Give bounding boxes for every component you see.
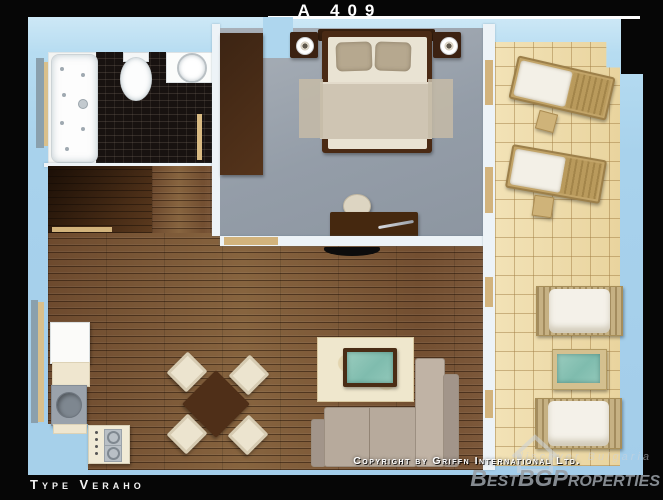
tub-jet xyxy=(60,67,64,71)
lounger-slats xyxy=(565,72,611,116)
tub-jet xyxy=(81,127,85,131)
balcony-side-table xyxy=(532,195,555,219)
stove-burner xyxy=(104,445,122,462)
bedroom-door-threshold xyxy=(224,237,278,245)
stove-knob xyxy=(95,438,98,441)
fridge xyxy=(50,322,90,364)
lounger-slats xyxy=(560,158,602,200)
balcony-table-glass xyxy=(557,354,600,383)
lamp-left xyxy=(296,37,314,55)
stove-knob xyxy=(95,431,98,434)
bathtub xyxy=(51,54,98,163)
entry-hall-floor xyxy=(48,166,152,233)
tub-jet xyxy=(81,73,85,77)
bed-blanket xyxy=(320,82,432,139)
kitchen-counter-end xyxy=(53,424,87,434)
frame-top-right-notch xyxy=(621,0,663,74)
lounger-cushion xyxy=(513,60,573,107)
stove-knob xyxy=(95,445,98,448)
kitchen-sink-unit xyxy=(51,385,87,426)
kitchen-window-sill xyxy=(38,302,44,422)
kitchen-counter xyxy=(52,362,90,387)
coffee-table-glass xyxy=(347,352,393,383)
balcony-door-frame xyxy=(485,167,493,213)
watermark-brand: BestBGProperties xyxy=(448,465,660,492)
toilet xyxy=(120,57,152,101)
stove-burner xyxy=(104,429,122,446)
corridor-floor xyxy=(152,166,212,236)
pillow-right xyxy=(375,41,412,71)
hall-door-threshold xyxy=(52,227,112,232)
bedroom-wall-notch xyxy=(263,17,293,58)
floorplan-image: A 409 xyxy=(0,0,663,500)
stove xyxy=(88,425,130,464)
sofa-chaise xyxy=(415,358,445,467)
tub-jet xyxy=(65,147,69,151)
stove-knob xyxy=(95,452,98,455)
balcony-door-frame xyxy=(485,390,493,418)
kitchen-window xyxy=(31,300,38,423)
balcony-door-frame xyxy=(485,60,493,105)
tub-control xyxy=(78,99,88,109)
bedside-rug-right xyxy=(428,79,453,138)
bedside-rug-left xyxy=(299,79,323,138)
balcony-door-frame xyxy=(485,277,493,307)
sofa-back-right xyxy=(443,374,459,467)
wicker-cushion xyxy=(549,289,610,333)
tub-jet xyxy=(60,121,64,125)
bathroom-window xyxy=(36,58,44,148)
pillow-left xyxy=(336,41,373,71)
lamp-right xyxy=(440,37,458,55)
wicker-sofa xyxy=(536,286,623,336)
towel-rail xyxy=(197,114,202,160)
bedroom-left-wall xyxy=(212,24,220,236)
bathroom-sink xyxy=(177,53,207,83)
title-underline xyxy=(268,16,640,19)
type-label: Type Veraho xyxy=(30,477,145,492)
lounger-cushion xyxy=(510,149,566,193)
kitchen-sink-basin xyxy=(56,392,82,418)
tub-jet xyxy=(62,93,66,97)
wardrobe xyxy=(220,33,263,175)
